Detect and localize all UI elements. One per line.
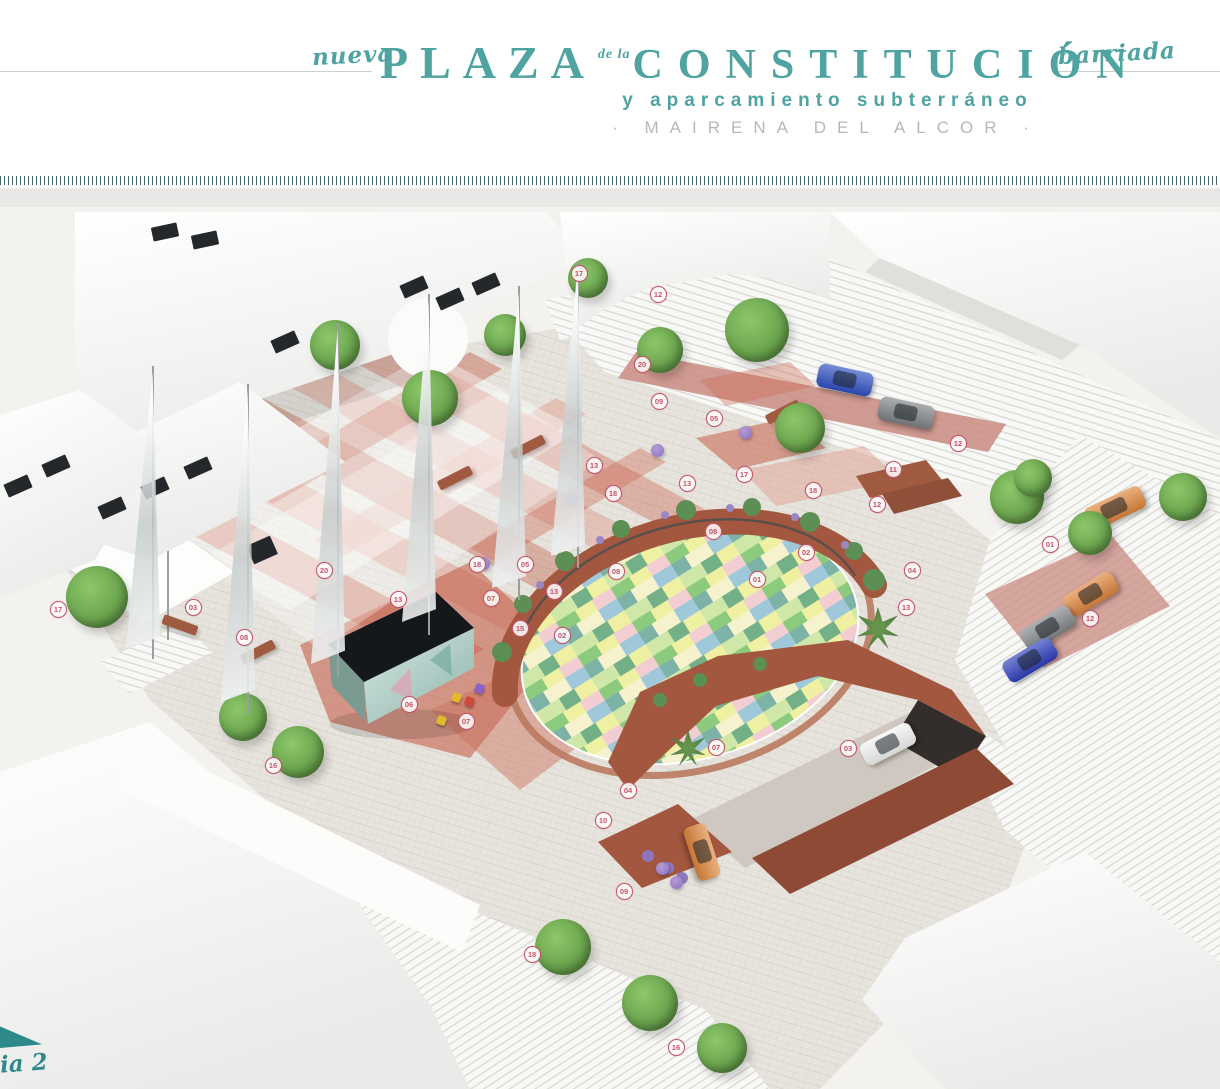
post-title: barriada [1057, 37, 1176, 70]
title-connector: de la [598, 47, 631, 62]
roof-icon [0, 1018, 42, 1048]
project-location: · MAIRENA DEL ALCOR · [596, 118, 1056, 138]
title-rule-left [0, 71, 372, 72]
gray-band [0, 188, 1220, 207]
studio-logo: ia 2 [0, 1018, 48, 1077]
title-main: PLAZA [380, 37, 596, 88]
project-title: PLAZAde laCONSTITUCIÓN [380, 36, 1060, 89]
title-block: nueva PLAZAde laCONSTITUCIÓN barriada y … [0, 0, 1220, 188]
tick-separator [0, 176, 1220, 185]
project-subtitle: y aparcamiento subterráneo [600, 90, 1055, 112]
logo-text: ia 2 [0, 1048, 49, 1078]
presentation-board: nueva PLAZAde laCONSTITUCIÓN barriada y … [0, 0, 1220, 1089]
